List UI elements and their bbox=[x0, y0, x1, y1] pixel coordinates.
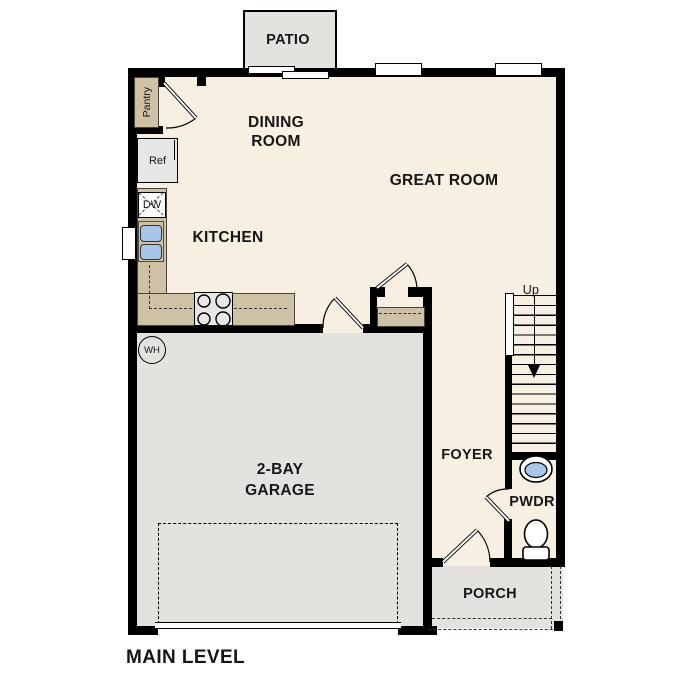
garage-door-clearance bbox=[158, 523, 398, 624]
refrigerator-door-line bbox=[174, 140, 175, 160]
wall-left bbox=[128, 68, 137, 635]
dishwasher-label: DW bbox=[142, 199, 162, 211]
floor-plan: Pantry Ref DW WH bbox=[0, 0, 687, 687]
wall-stair-side bbox=[505, 352, 512, 452]
floor-plan-page: { "plan": { "level_label": "MAIN LEVEL",… bbox=[0, 0, 687, 687]
window-icon bbox=[495, 63, 542, 76]
window-icon bbox=[375, 63, 422, 76]
porch-dashed-line bbox=[432, 618, 552, 619]
pantry-label: Pantry bbox=[141, 87, 153, 117]
stair-railing bbox=[505, 293, 514, 356]
sliding-door-icon bbox=[282, 71, 329, 79]
kitchen-label: KITCHEN bbox=[168, 228, 288, 247]
pantry-closet: Pantry bbox=[134, 77, 159, 128]
stove bbox=[194, 292, 233, 326]
powder-room-label: PWDR bbox=[492, 493, 572, 512]
dining-room-label: DINING ROOM bbox=[236, 113, 316, 151]
porch-post bbox=[554, 621, 563, 631]
dishwasher: DW bbox=[138, 192, 166, 218]
refrigerator-label: Ref bbox=[149, 155, 166, 167]
stairs-direction-line bbox=[534, 295, 535, 366]
window-icon bbox=[122, 227, 136, 260]
wall-garage-bottom-left bbox=[128, 626, 158, 635]
wall-foyer-bottom-left bbox=[425, 558, 443, 567]
stairs-up-label: Up bbox=[511, 281, 551, 300]
wall-dining-stub bbox=[197, 75, 206, 86]
great-room-label: GREAT ROOM bbox=[364, 171, 524, 190]
counter-guide-line bbox=[149, 265, 150, 309]
sink-basin-icon bbox=[140, 244, 162, 260]
patio-label: PATIO bbox=[243, 31, 333, 50]
porch-label: PORCH bbox=[450, 585, 530, 604]
porch-dashed-line bbox=[428, 629, 563, 630]
refrigerator: Ref bbox=[137, 138, 178, 183]
foyer-label: FOYER bbox=[427, 446, 507, 465]
garage-label: 2-BAY GARAGE bbox=[235, 459, 325, 501]
porch-dashed-line bbox=[560, 566, 561, 629]
wall-pwdr-top bbox=[505, 452, 565, 460]
water-heater: WH bbox=[138, 336, 166, 364]
closet-shelf bbox=[377, 307, 425, 327]
stairs-arrow-icon bbox=[528, 365, 540, 378]
garage-door bbox=[155, 622, 401, 629]
water-heater-label: WH bbox=[144, 345, 160, 356]
porch-dashed-line bbox=[551, 566, 552, 629]
level-title: MAIN LEVEL bbox=[126, 648, 346, 667]
closet-shelf-line bbox=[379, 313, 421, 314]
wall-foyer-bottom-right bbox=[490, 558, 565, 567]
sink-basin-icon bbox=[140, 225, 162, 242]
wall-closet-stub-left bbox=[370, 287, 385, 297]
